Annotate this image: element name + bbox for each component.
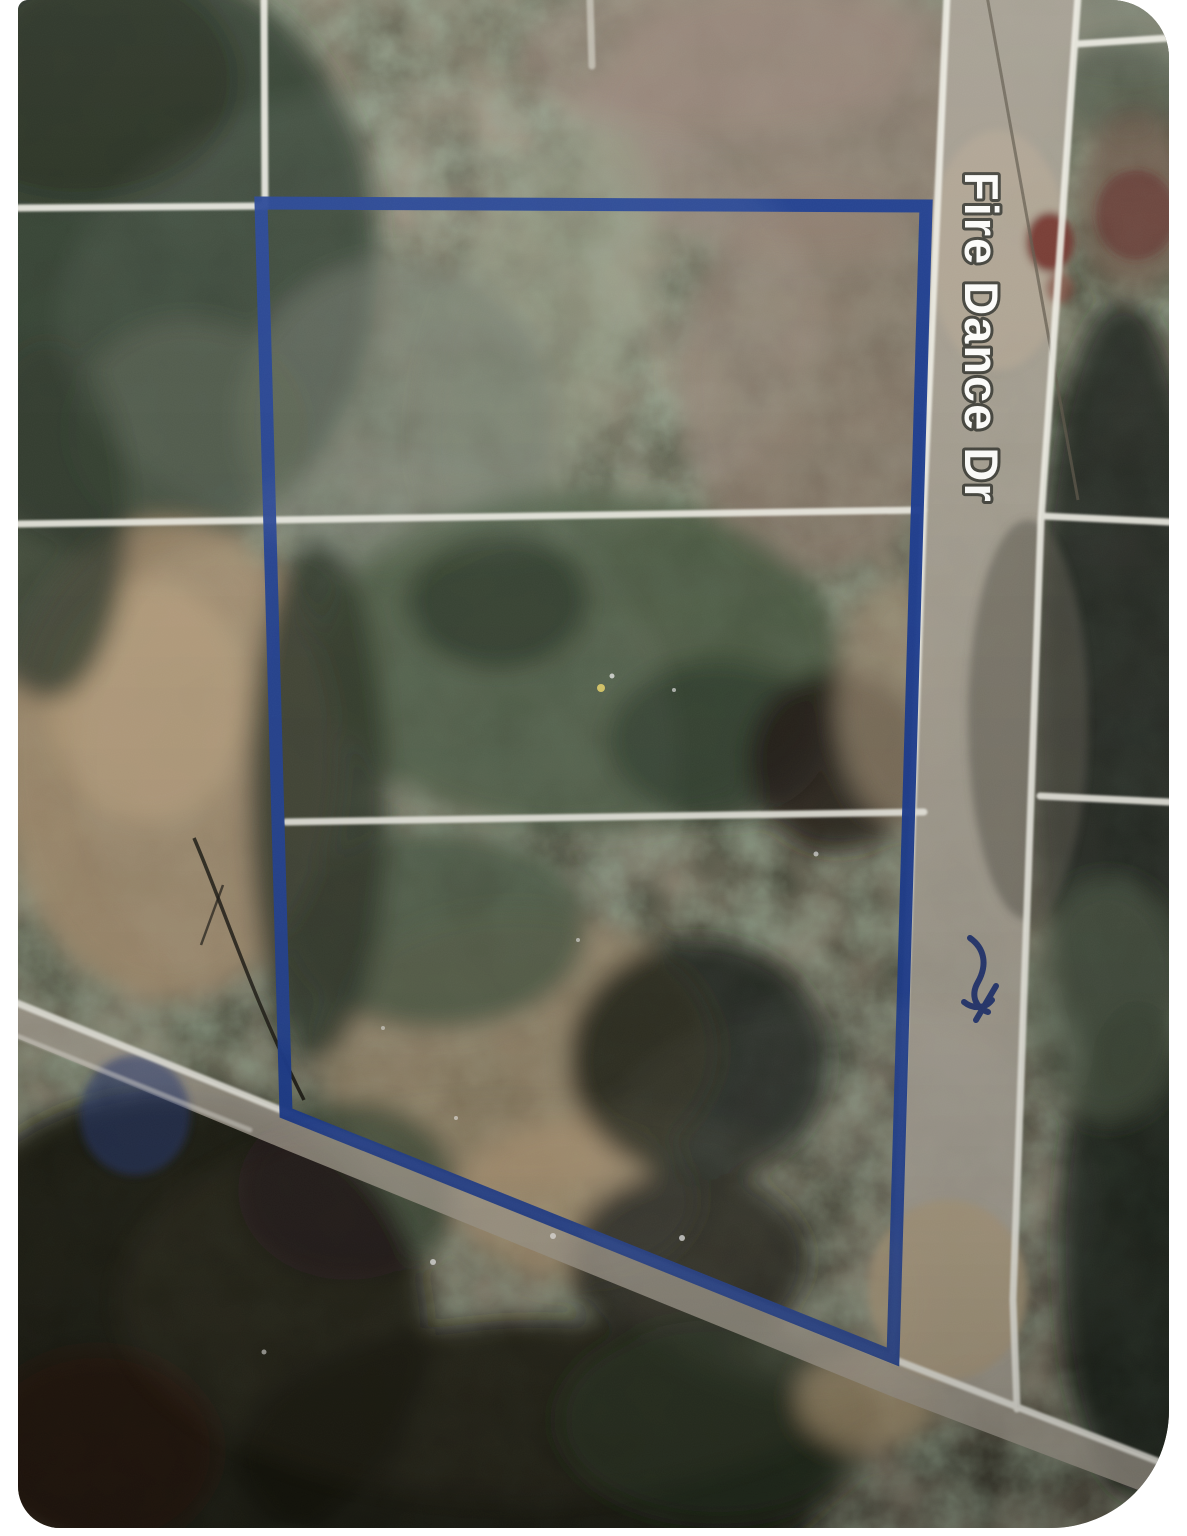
photo-grain	[18, 0, 1169, 1528]
satellite-canvas: Fire Dance Dr	[18, 0, 1169, 1528]
page-background: Fire Dance Dr	[0, 0, 1187, 1536]
satellite-map-photo: Fire Dance Dr	[18, 0, 1169, 1528]
